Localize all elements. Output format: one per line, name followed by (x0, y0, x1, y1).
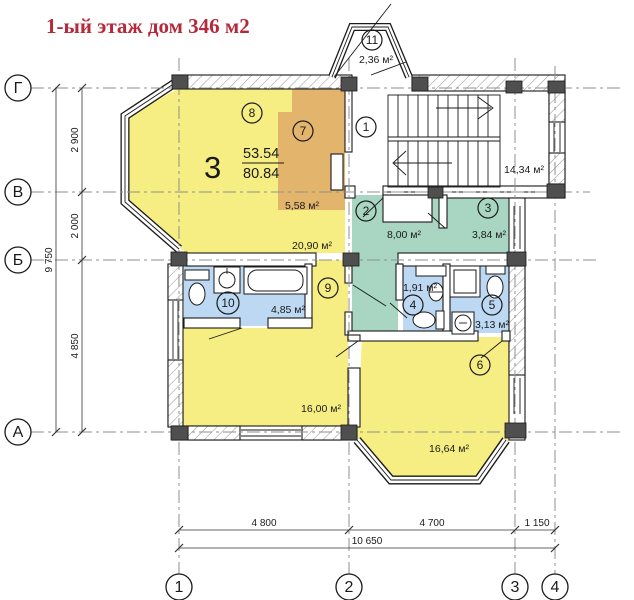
room-4-area: 1,91 м² (403, 282, 438, 294)
top-wall-right (412, 75, 565, 91)
dim-v-2900: 2 900 (70, 127, 81, 152)
axis-number-2: 2 (345, 579, 354, 596)
dim-v-2000: 2 000 (70, 213, 81, 238)
room-2-area: 8,00 м² (387, 229, 422, 241)
room-11-area: 2,36 м² (359, 54, 394, 66)
room-2-number: 2 (363, 204, 370, 218)
dim-h-1150: 1 150 (524, 518, 549, 529)
room-9-area: 16,00 м² (301, 403, 341, 415)
room-8-number: 8 (249, 106, 256, 120)
toilet-tank (185, 270, 209, 280)
room-10-number: 10 (221, 296, 235, 310)
axis-letter-v: В (13, 184, 24, 201)
right-wall-lower-hatch (509, 266, 525, 375)
apartment-lower-area: 80.84 (243, 166, 279, 182)
apartment-number: 3 (204, 150, 221, 185)
room-11-number: 11 (366, 33, 379, 47)
understairs-shaft (383, 195, 432, 222)
door-leaf-room7 (331, 154, 343, 190)
axis-letter-g: Г (14, 80, 23, 97)
bathtub-inner (248, 270, 303, 291)
room-6-number: 6 (477, 358, 484, 372)
toilet-bowl (487, 276, 503, 298)
vent-box (416, 266, 446, 276)
floor-plan-drawing: 2 900 2 000 4 850 9 750 4 800 4 700 1 15… (0, 0, 634, 600)
bottom-wall-hatch2 (302, 426, 342, 440)
stairs (388, 95, 500, 187)
right-wall-upper-hatch2 (549, 153, 565, 184)
wall-room10-bottom-a (184, 318, 240, 328)
room-5-number: 5 (489, 298, 496, 312)
wall-strip-room4 (396, 264, 403, 300)
axis-circles-bottom: 1 2 3 4 (166, 574, 568, 600)
room-10-area: 4,85 м² (271, 304, 306, 316)
toilet-tank (436, 311, 444, 329)
floor-plan-page: 2 900 2 000 4 850 9 750 4 800 4 700 1 15… (0, 0, 634, 600)
room-6-fill (357, 337, 509, 480)
wall-room2-room3 (439, 195, 447, 228)
toilet-bowl (189, 283, 205, 305)
bottom-wall-hatch1 (188, 426, 240, 440)
toilet-tank (486, 266, 505, 274)
axis-number-4: 4 (551, 579, 560, 596)
room-8-area: 20,90 м² (292, 240, 332, 252)
dim-h-4700: 4 700 (419, 518, 444, 529)
wall-bath-bottom-stub (502, 331, 510, 341)
room-6-area: 16,64 м² (429, 443, 469, 455)
top-wall-left (172, 75, 352, 89)
left-wall-hatch2 (168, 360, 183, 427)
axis-circles-left: Г В Б А (5, 75, 31, 445)
room-3-number: 3 (485, 201, 492, 215)
dim-v-4850: 4 850 (70, 333, 81, 358)
stair-treads-upper (398, 95, 488, 137)
wall-room10-bottom-b (268, 318, 312, 328)
page-title: 1-ый этаж дом 346 м2 (46, 14, 250, 38)
apartment-label: 3 53.54 80.84 (204, 146, 284, 185)
right-wall-upper-hatch1 (549, 91, 565, 122)
wall-room16-room6-b (348, 368, 360, 427)
room-7-area: 5,58 м² (285, 200, 320, 212)
room-1-number: 1 (363, 120, 370, 134)
room-4-number: 4 (410, 298, 417, 312)
room-5-area: 3,13 м² (475, 319, 510, 331)
room-7-number: 7 (300, 124, 307, 138)
stair-treads-lower (398, 141, 488, 187)
room-1-area: 14,34 м² (504, 164, 544, 176)
dimensions-bottom: 4 800 4 700 1 150 10 650 (175, 518, 559, 552)
left-wall-hatch1 (168, 264, 183, 300)
dim-h-total-10650: 10 650 (352, 536, 383, 547)
room-3-area: 3,84 м² (472, 229, 507, 241)
dim-v-total-9750: 9 750 (44, 247, 55, 272)
room-9-number: 9 (325, 281, 332, 295)
dim-h-4800: 4 800 (251, 518, 276, 529)
axis-number-1: 1 (175, 579, 184, 596)
wall-room16-room6-a (348, 335, 360, 341)
axis-letter-b: Б (13, 252, 24, 269)
axis-letter-a: А (13, 424, 24, 441)
axis-number-3: 3 (511, 579, 520, 596)
apartment-upper-area: 53.54 (243, 146, 279, 162)
